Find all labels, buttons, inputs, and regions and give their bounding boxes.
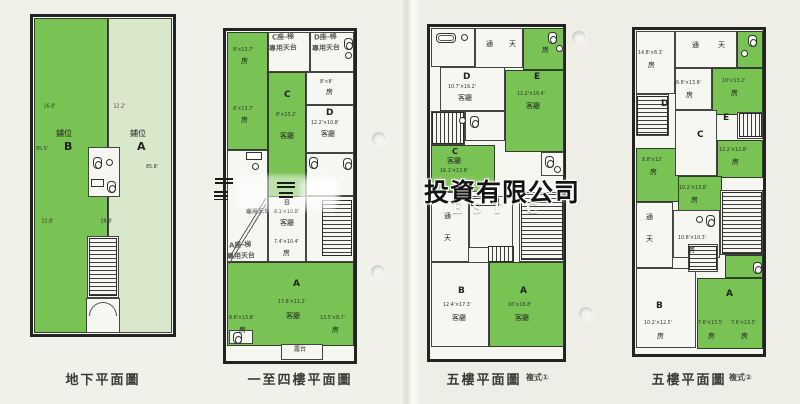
sink-icon — [345, 52, 352, 59]
hole-punch — [371, 265, 385, 279]
room-label: 客廳 — [526, 103, 540, 110]
room-label: 房 — [542, 47, 549, 54]
dimension-label: 85.8' — [146, 165, 158, 170]
sink-icon — [459, 117, 466, 124]
dimension-label: 12.2'×16.4' — [517, 92, 545, 97]
dimension-label: 14.8'×8.3' — [638, 51, 663, 56]
dimension-label: 10.8'×10.3' — [678, 236, 706, 241]
unit-label: B — [656, 302, 663, 311]
dimension-label: 8'×13.7' — [233, 48, 253, 53]
unit-label: D — [463, 73, 471, 82]
dimension-label: 7.6'×13.5' — [698, 321, 723, 326]
room-label: 天 — [718, 42, 725, 49]
plan-caption-style-tag: 複式① — [526, 372, 549, 383]
handwritten-note: 專用天台 — [227, 252, 255, 261]
dimension-label: 8.8'×13.8' — [229, 316, 254, 321]
sink-icon — [696, 216, 703, 223]
handwritten-note: A座-梯 — [229, 241, 252, 250]
dimension-label: 16'×16.8' — [508, 303, 531, 308]
dimension-label: 8'×23.2' — [276, 113, 296, 118]
dimension-label: 8'×8' — [320, 80, 333, 85]
room-area — [636, 202, 673, 268]
plan-caption: 地下平面圖 — [65, 369, 140, 388]
room-label: 房 — [731, 90, 738, 97]
watermark-obscured-glyphs — [215, 178, 233, 186]
room-label: 房 — [708, 333, 715, 340]
room-label: 房 — [732, 159, 739, 166]
toilet-icon — [545, 156, 554, 168]
hole-punch — [572, 31, 586, 45]
stairs — [432, 112, 464, 144]
dimension-label: 12.2'×10.8' — [311, 121, 339, 126]
sink-icon — [461, 34, 468, 41]
sink-icon — [106, 159, 113, 166]
toilet-icon — [748, 35, 757, 47]
toilet-icon — [343, 158, 352, 170]
room-label: 房 — [686, 92, 693, 99]
dimension-line: 16.8' — [40, 102, 102, 110]
toilet-icon — [753, 262, 762, 274]
unit-label: C — [284, 91, 291, 100]
stairs — [739, 113, 762, 137]
room-label: 客廳 — [280, 133, 294, 140]
tub-icon — [436, 33, 456, 43]
dimension-line: 12.2' — [110, 102, 170, 110]
room-area — [636, 268, 696, 348]
plan-caption: 一至四樓平面圖 — [247, 369, 352, 388]
room-label: 房 — [283, 250, 290, 257]
toilet-icon — [309, 157, 318, 169]
toilet-icon — [548, 32, 557, 44]
unit-label: E — [534, 73, 541, 82]
room-label: 房 — [241, 117, 248, 124]
room-label: 房 — [239, 327, 246, 334]
room-label: 通 — [444, 213, 451, 220]
dimension-label: 11.8' — [40, 218, 55, 224]
room-label: 通 — [646, 214, 653, 221]
sink-icon — [554, 166, 561, 173]
room-label: 通 — [486, 41, 493, 48]
unit-label: E — [723, 114, 730, 123]
room-label: 客廳 — [286, 313, 300, 320]
dimension-label: 13.5'×8.7' — [320, 316, 345, 321]
toilet-icon — [93, 157, 102, 169]
room-label: 房 — [648, 62, 655, 69]
handwritten-note: D座-梯 — [314, 33, 337, 42]
hole-punch — [372, 132, 386, 146]
room-label: 房 — [241, 58, 248, 65]
room-area — [675, 110, 717, 176]
unit-label: D — [661, 100, 669, 109]
watermark-latin-text: EST C — [452, 200, 548, 218]
dimension-label: 10.7'×16.2' — [448, 85, 476, 90]
plan-caption: 五樓平面圖 — [446, 369, 521, 388]
watermark-obscured-glyphs — [214, 191, 228, 200]
room-label: 客廳 — [321, 131, 335, 138]
scanned-floorplan-page: 鋪位B85.5'鋪位A85.8'16.8'12.2'11.8'16.8'地下平面… — [0, 0, 800, 404]
unit-label: A — [726, 290, 733, 299]
room-label: 房 — [741, 333, 748, 340]
dimension-label: 8.8'×13.8' — [676, 81, 701, 86]
room-area — [675, 68, 712, 110]
room-label: 客廳 — [515, 315, 529, 322]
sink-icon — [741, 50, 748, 57]
dimension-label: 85.5' — [36, 147, 48, 152]
dimension-label: 10.2'×13.8' — [679, 186, 707, 191]
dimension-label: 16.8' — [99, 218, 114, 224]
sink-icon — [556, 45, 563, 52]
room-label: 天 — [646, 236, 653, 243]
room-label: 客廳 — [458, 95, 472, 102]
dimension-line: 11.8' — [38, 217, 93, 225]
dimension-label: 17.8'×11.2' — [278, 300, 306, 305]
toilet-icon — [344, 38, 353, 50]
unit-label: A — [293, 280, 300, 289]
room-label: 房 — [688, 247, 695, 254]
plan-caption-style-tag: 複式② — [729, 372, 752, 383]
room-label: 房 — [650, 169, 657, 176]
handwritten-note: C座-梯 — [272, 33, 294, 41]
room-label: 客廳 — [280, 220, 294, 227]
counter-icon — [246, 152, 262, 160]
room-label: 房 — [657, 333, 664, 340]
dimension-label: 8'×13.7' — [233, 107, 253, 112]
unit-label: B — [64, 141, 73, 153]
unit-label: D — [326, 109, 334, 118]
counter-icon — [91, 179, 104, 187]
dimension-label: 10'×13.2' — [722, 79, 745, 84]
stairs — [488, 246, 514, 262]
hole-punch — [579, 307, 593, 321]
watermark-obscured-glyphs — [279, 192, 293, 199]
room-label: 鋪位 — [130, 130, 146, 138]
toilet-icon — [470, 116, 479, 128]
dimension-label: 7.4'×10.4' — [274, 240, 299, 245]
room-label: 天 — [444, 235, 451, 242]
unit-label: C — [697, 131, 704, 140]
stairs — [89, 238, 117, 296]
sink-icon — [252, 163, 259, 170]
dimension-label: 12.4'×17.3' — [443, 303, 471, 308]
room-label: 房 — [326, 89, 333, 96]
page-seam — [403, 0, 419, 404]
room-label: 客廳 — [447, 158, 461, 165]
dimension-line: 16.8' — [97, 217, 170, 225]
room-area — [675, 31, 737, 68]
room-area — [717, 140, 763, 178]
room-label: 鋪位 — [56, 130, 72, 138]
dimension-label: 8.8'×12' — [642, 158, 662, 163]
handwritten-note: 專用天台 — [269, 44, 297, 53]
plan-caption: 五樓平面圖 — [651, 369, 726, 388]
stairs — [722, 192, 762, 254]
dimension-label: 12.2' — [112, 103, 127, 109]
toilet-icon — [706, 215, 715, 227]
watermark-smudge — [300, 180, 340, 204]
unit-label: A — [137, 141, 146, 153]
dimension-label: 7.6'×13.5' — [731, 321, 756, 326]
watermark-obscured-glyphs — [277, 182, 295, 189]
toilet-icon — [107, 181, 116, 193]
room-label: 房 — [691, 197, 698, 204]
room-label: 通 — [692, 42, 699, 49]
room-label: 露台 — [294, 347, 306, 353]
room-label: 房 — [332, 327, 339, 334]
room-label: 客廳 — [452, 315, 466, 322]
room-label: 天 — [509, 41, 516, 48]
dimension-label: 10.2'×12.5' — [644, 321, 672, 326]
unit-label: C — [452, 148, 458, 156]
unit-label: A — [520, 287, 527, 296]
dimension-label: 16.8' — [42, 103, 57, 109]
room-area — [636, 31, 675, 94]
handwritten-note: 專用天台 — [312, 44, 340, 53]
unit-label: B — [458, 287, 465, 296]
dimension-label: 12.2'×12.8' — [719, 148, 747, 153]
